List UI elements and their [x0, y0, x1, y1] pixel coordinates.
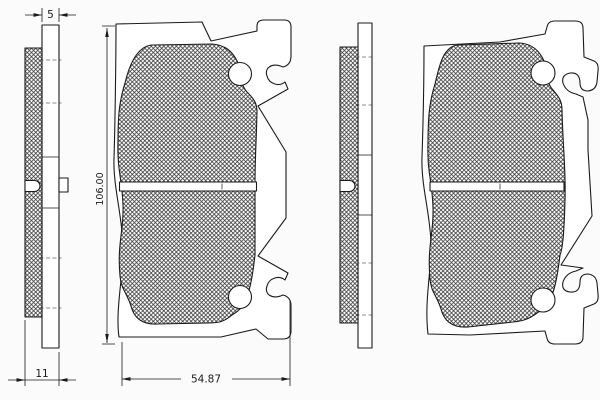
side-view-right: [340, 23, 375, 348]
right-pad-lower-hole: [531, 288, 555, 312]
brake-pad-drawing: 5 11 106.00 54.87: [0, 0, 600, 400]
front-view-right-pad: [422, 21, 598, 344]
arrowhead: [17, 378, 26, 382]
dim-label-11: 11: [35, 368, 48, 380]
right-pad-slot: [430, 182, 564, 191]
front-view-middle-pad: [114, 20, 291, 339]
arrowhead: [282, 377, 291, 381]
dimension-pad-height: 106.00: [95, 26, 115, 344]
arrowhead: [105, 334, 109, 343]
side-view-left: [25, 25, 68, 348]
dim-label-5: 5: [47, 9, 54, 21]
arrowhead: [59, 378, 68, 382]
side-view-tab: [59, 178, 68, 192]
right-pad-upper-hole: [531, 61, 555, 85]
arrowhead: [122, 377, 131, 381]
middle-pad-slot: [120, 182, 257, 191]
middle-pad-lower-hole: [229, 286, 252, 309]
middle-pad-upper-hole: [229, 63, 252, 86]
technical-drawing-canvas: 5 11 106.00 54.87: [0, 0, 600, 400]
side-view-backplate: [42, 25, 59, 348]
side-view-right-backplate: [358, 23, 372, 348]
arrowhead: [59, 13, 68, 17]
dimension-friction-thickness: 5: [25, 8, 76, 22]
arrowhead: [105, 28, 109, 37]
arrowhead: [34, 13, 43, 17]
side-view-slot-notch: [25, 181, 40, 192]
side-view-right-slot-notch: [340, 181, 355, 192]
dim-label-5487: 54.87: [191, 374, 221, 386]
dim-label-106: 106.00: [95, 172, 106, 205]
